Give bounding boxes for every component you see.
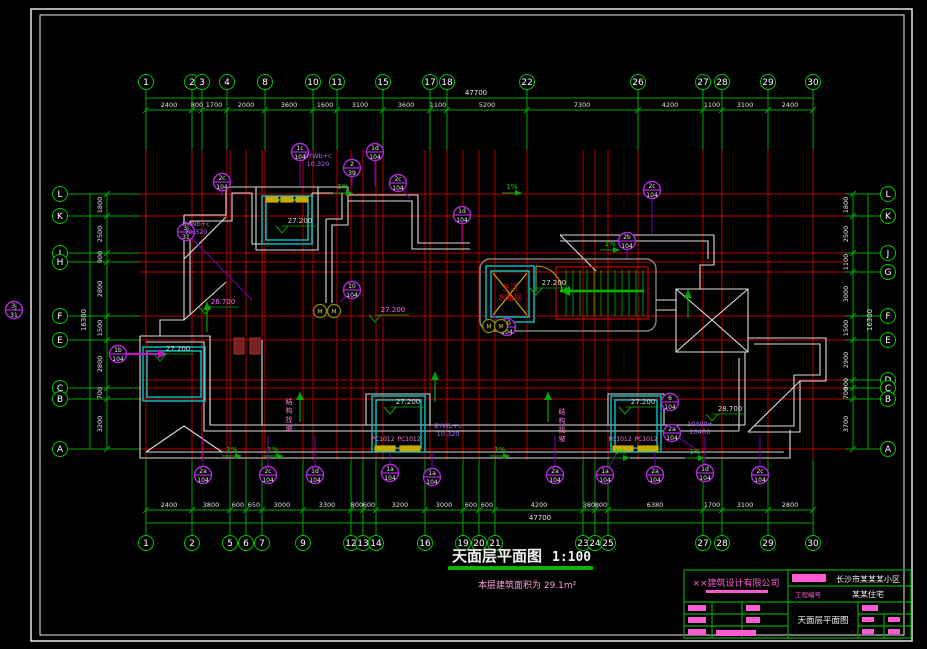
project-name: 长沙市某某某小区 [836,574,900,584]
callout-detail-no: 2c [648,183,655,190]
note-text: 10400 [690,428,711,436]
title-block: ××建筑设计有限公司 长沙市某某某小区 工程编号 某某住宅 天面层平面图 [684,570,911,638]
vertical-note: 构 [559,416,566,425]
grid-bubble-label: F [885,312,890,322]
elevation-value: 26.700 [211,298,236,306]
window-sill [375,446,395,451]
grid-bubble-label: 1 [143,539,149,549]
slope-label: 1% [614,448,625,456]
callout-detail-no: 1d [371,145,379,152]
slope-arrow-head [544,392,552,400]
note-text: BYWb+c [434,422,462,430]
window-tag: PC1012 [397,436,420,443]
dim-text: 700 [842,387,850,399]
callout-detail-no: 2c [756,468,763,475]
callout-detail-no: 2c [218,175,225,182]
window-tag: PC1012 [634,436,657,443]
hatch [266,197,278,202]
grid-bubble-label: J [886,249,890,259]
grid-bubble-label: 17 [424,78,435,88]
callout-sheet-no: 104 [664,404,676,411]
callout-detail-no: 1b [114,347,122,354]
callout-detail-no: 1c [296,145,303,152]
grid-bubble-label: F [57,312,62,322]
grid-bubble-label: A [57,445,64,455]
signature-blobs [688,605,900,636]
callout-sheet-no: 104 [599,477,611,484]
callout-detail-no: 2b [623,234,631,241]
vertical-note: 结 [286,397,293,406]
dim-text: 600 [481,501,493,509]
dim-text: 1600 [317,101,334,109]
grid-bubble-label: 3 [199,78,205,88]
grid-bubble-label: 30 [807,78,819,88]
dim-text: 4200 [662,101,679,109]
elevation-triangle [619,407,631,414]
callout-detail-no: 1d [311,468,319,475]
grid-bubble-label: B [57,395,63,405]
callout-sheet-no: 104 [309,477,321,484]
grid-bubble-label: 9 [300,539,306,549]
drawing-title: 天面层平面图 1:100 本层建筑面积为 29.1m² [448,547,593,591]
window-tag: PC1012 [371,436,394,443]
dim-text: 1100 [704,101,721,109]
cad-canvas: 1122345678910111213141516171819202122232… [0,0,927,649]
stair-treads [566,270,643,316]
elevation-value: 27.200 [381,306,406,314]
hatch [281,197,293,202]
callout-detail-no: 6 [668,395,672,402]
slope-label: 1% [226,446,237,454]
slope-label: 1% [689,448,700,456]
elevation-triangle [276,226,288,233]
core-label-line2: 水箱间 [498,292,522,302]
grid-bubble-label: 14 [370,539,382,549]
grid-bubble-label: B [885,395,891,405]
grid-bubble-label: 15 [377,78,388,88]
callout-leader [186,232,252,300]
project-no-label: 工程编号 [795,590,822,599]
company-underline [706,590,768,593]
grid-bubble-label: L [885,190,890,200]
dim-text: 3100 [352,101,369,109]
dim-text: 1700 [206,101,223,109]
title-scale: 1:100 [552,550,591,565]
grid-bubble-label: 24 [589,539,601,549]
callout-detail-no: 2a [651,468,659,475]
grid-bubble-label: 7 [259,539,265,549]
elevation-value: 27.200 [542,279,567,287]
dim-text: 2000 [238,101,255,109]
elevation-value: 27.200 [166,345,191,353]
callout-detail-no: 2 [350,161,354,168]
dim-text: 650 [248,501,260,509]
area-note: 本层建筑面积为 29.1m² [478,579,577,591]
callout-sheet-no: 104 [621,243,633,250]
dim-text: 6380 [647,501,664,509]
callout-detail-no: 10 [348,283,356,290]
dim-text: 1500 [842,320,850,337]
grid-bubble-label: 2 [189,539,195,549]
grid-bubble-label: E [57,336,63,346]
callout-detail-no: 1d [701,466,709,473]
window-tag: PC1012 [608,436,631,443]
roof-drain-label: M [331,309,336,316]
dim-text: 3800 [203,501,220,509]
flue-block [234,338,244,354]
company-name: ××建筑设计有限公司 [692,577,779,589]
dim-text: 900 [96,251,104,263]
callout-detail-no: 2a [668,426,676,433]
callout-sheet-no: 104 [646,192,658,199]
callout-detail-no: 1a [428,470,436,477]
grid-bubble-label: 27 [697,78,708,88]
dim-text: 2400 [161,101,178,109]
grid-bubble-label: 10 [307,78,319,88]
grid-bubble-label: 16 [419,539,431,549]
grid-bubble-label: A [885,445,892,455]
roof-drain-label: M [486,324,491,331]
drawing-name: 天面层平面图 [797,616,848,626]
callout-sheet-no: 104 [666,435,678,442]
dim-text: 3600 [398,101,415,109]
dim-text: 2900 [842,352,850,369]
elevation-value: 28.700 [718,405,743,413]
core-label-line1: 生活 [502,282,518,292]
dim-text: 2500 [96,226,104,243]
grid-bubble-label: 28 [716,78,728,88]
callout-detail-no: 2c [264,468,271,475]
grid-bubble-label: H [57,258,64,268]
dim-text: 800 [191,101,203,109]
dim-text: 3000 [274,501,291,509]
callout-sheet-no: 104 [216,184,228,191]
grid-bubble-label: 30 [807,539,819,549]
dim-text: 3200 [392,501,409,509]
grid-bubble-label: 25 [602,539,613,549]
callout-sheet-no: 104 [384,475,396,482]
note-text: BYWb+c [304,152,332,160]
callout-sheet-no: 39 [348,170,356,177]
callout-detail-no: 2a [199,468,207,475]
slope-arrow-head [431,372,439,380]
slope-label: 1% [494,446,505,454]
dim-text: 380 [583,501,595,509]
title-text: 天面层平面图 [452,547,542,565]
grid-bubble-label: 2 [189,78,195,88]
dim-text: 2800 [782,501,799,509]
grid-bubble-label: 12 [345,539,356,549]
dim-text: 3200 [96,416,104,433]
note-text: 10400+ [687,420,713,428]
callout-detail-no: 2a [551,468,559,475]
grid-bubble-label: 4 [224,78,230,88]
note-text: BYWb+c [182,220,210,228]
shaft-box-inner [147,351,201,397]
slope-label: 1% [506,183,517,191]
dim-text: 1500 [96,320,104,337]
grid-bubble-label: 1 [143,78,149,88]
dim-text: 2400 [161,501,178,509]
slope-label: 1% [604,240,615,248]
grid-bubble-label: E [885,336,891,346]
dim-text: 800 [351,501,363,509]
grid-bubble-label: 5 [227,539,233,549]
dim-text: 2800 [96,356,104,373]
elevation-triangle [384,407,396,414]
roof-drain-label: M [498,324,503,331]
overall-dim-top: 47700 [465,89,487,97]
dim-text: 3600 [281,101,298,109]
dim-text: 600 [232,501,244,509]
vertical-note: 找 [559,425,566,434]
grid-bubble-label: 11 [331,78,342,88]
roof-drain-label: M [317,309,322,316]
vertical-note: 构 [286,406,293,415]
callout-detail-no: 1a [601,468,609,475]
drawing-sheet: 1122345678910111213141516171819202122232… [0,0,927,649]
grid-bubble-label: 22 [521,78,532,88]
dim-text: 1800 [842,197,850,214]
callout-sheet-no: 104 [699,475,711,482]
dim-text: 3000 [436,501,453,509]
dim-text: 1100 [430,101,447,109]
callout-sheet-no: 104 [754,477,766,484]
slope-label: 1% [337,183,348,191]
dim-text: 1800 [96,197,104,214]
callout-sheet-no: 104 [426,479,438,486]
dim-text: 3100 [737,501,754,509]
window-sill [638,446,658,451]
grid-bubble-label: 13 [357,539,368,549]
dim-text: 3700 [842,416,850,433]
elevation-value: 27.200 [396,398,421,406]
grid-bubble-label: 6 [243,539,249,549]
grid-bubble-label: 18 [441,78,453,88]
vertical-note: 找 [286,415,293,424]
note-text: 10.320 [185,228,208,236]
hatch [296,197,308,202]
dim-text: 3100 [737,101,754,109]
callout-detail-no: 1a [386,466,394,473]
grid-bubble-label: 23 [577,539,588,549]
overall-dim-left: 16300 [80,309,88,331]
grid-bubble-label: L [57,190,62,200]
dim-text: 4200 [531,501,548,509]
dim-text: 3300 [319,501,336,509]
slope-arrow-head [684,290,692,298]
dim-text: 2400 [782,101,799,109]
dim-text: 1100 [842,254,850,271]
vertical-note: 坡 [286,424,293,433]
callout-sheet-no: 104 [369,154,381,161]
grid-bubble-label: G [885,268,892,278]
dim-text: 600 [363,501,375,509]
grid-bubble-label: 8 [262,78,268,88]
overall-dim-right: 16300 [866,309,874,331]
grid-bubble-label: 28 [716,539,728,549]
callout-detail-no: 1d [458,208,466,215]
callout-sheet-no: 104 [262,477,274,484]
title-underline [448,566,593,570]
callout-sheet-no: 31 [10,312,18,319]
structural-grid: 1122345678910111213141516171819202122232… [53,75,896,551]
callout-sheet-no: 104 [346,292,358,299]
grid-bubble-label: 29 [762,539,774,549]
elevation-value: 27.200 [288,217,313,225]
flue-block [250,338,260,354]
callout-sheet-no: 104 [549,477,561,484]
dim-text: 800 [595,501,607,509]
callout-sheet-no: 104 [392,185,404,192]
dim-text: 600 [465,501,477,509]
callout-detail-no: 3j [11,303,17,310]
elevation-value: 27.200 [631,398,656,406]
callout-sheet-no: 104 [197,477,209,484]
dim-text: 5200 [479,101,496,109]
dim-text: 2800 [96,281,104,298]
dim-text: 7300 [574,101,591,109]
note-text: 10.320 [437,430,460,438]
vertical-note: 结 [559,407,566,416]
dim-text: 700 [96,387,104,399]
dim-text: 1700 [704,501,721,509]
callout-sheet-no: 104 [112,356,124,363]
grid-bubble-label: 29 [762,78,774,88]
overall-dim-bottom: 47700 [529,514,551,522]
callout-sheet-no: 104 [649,477,661,484]
note-text: 10.320 [307,160,330,168]
slope-label: 1% [267,446,278,454]
callout-sheet-no: 104 [456,217,468,224]
stamp-blob [792,574,826,582]
dim-text: 2500 [842,226,850,243]
grid-bubble-label: 27 [697,539,708,549]
vertical-note: 坡 [559,434,566,443]
shaft-box [143,347,205,401]
dim-text: 3000 [842,286,850,303]
grid-bubble-label: 26 [632,78,644,88]
callout-detail-no: 2c [394,176,401,183]
window-sill [400,446,420,451]
building-name: 某某住宅 [852,589,884,599]
